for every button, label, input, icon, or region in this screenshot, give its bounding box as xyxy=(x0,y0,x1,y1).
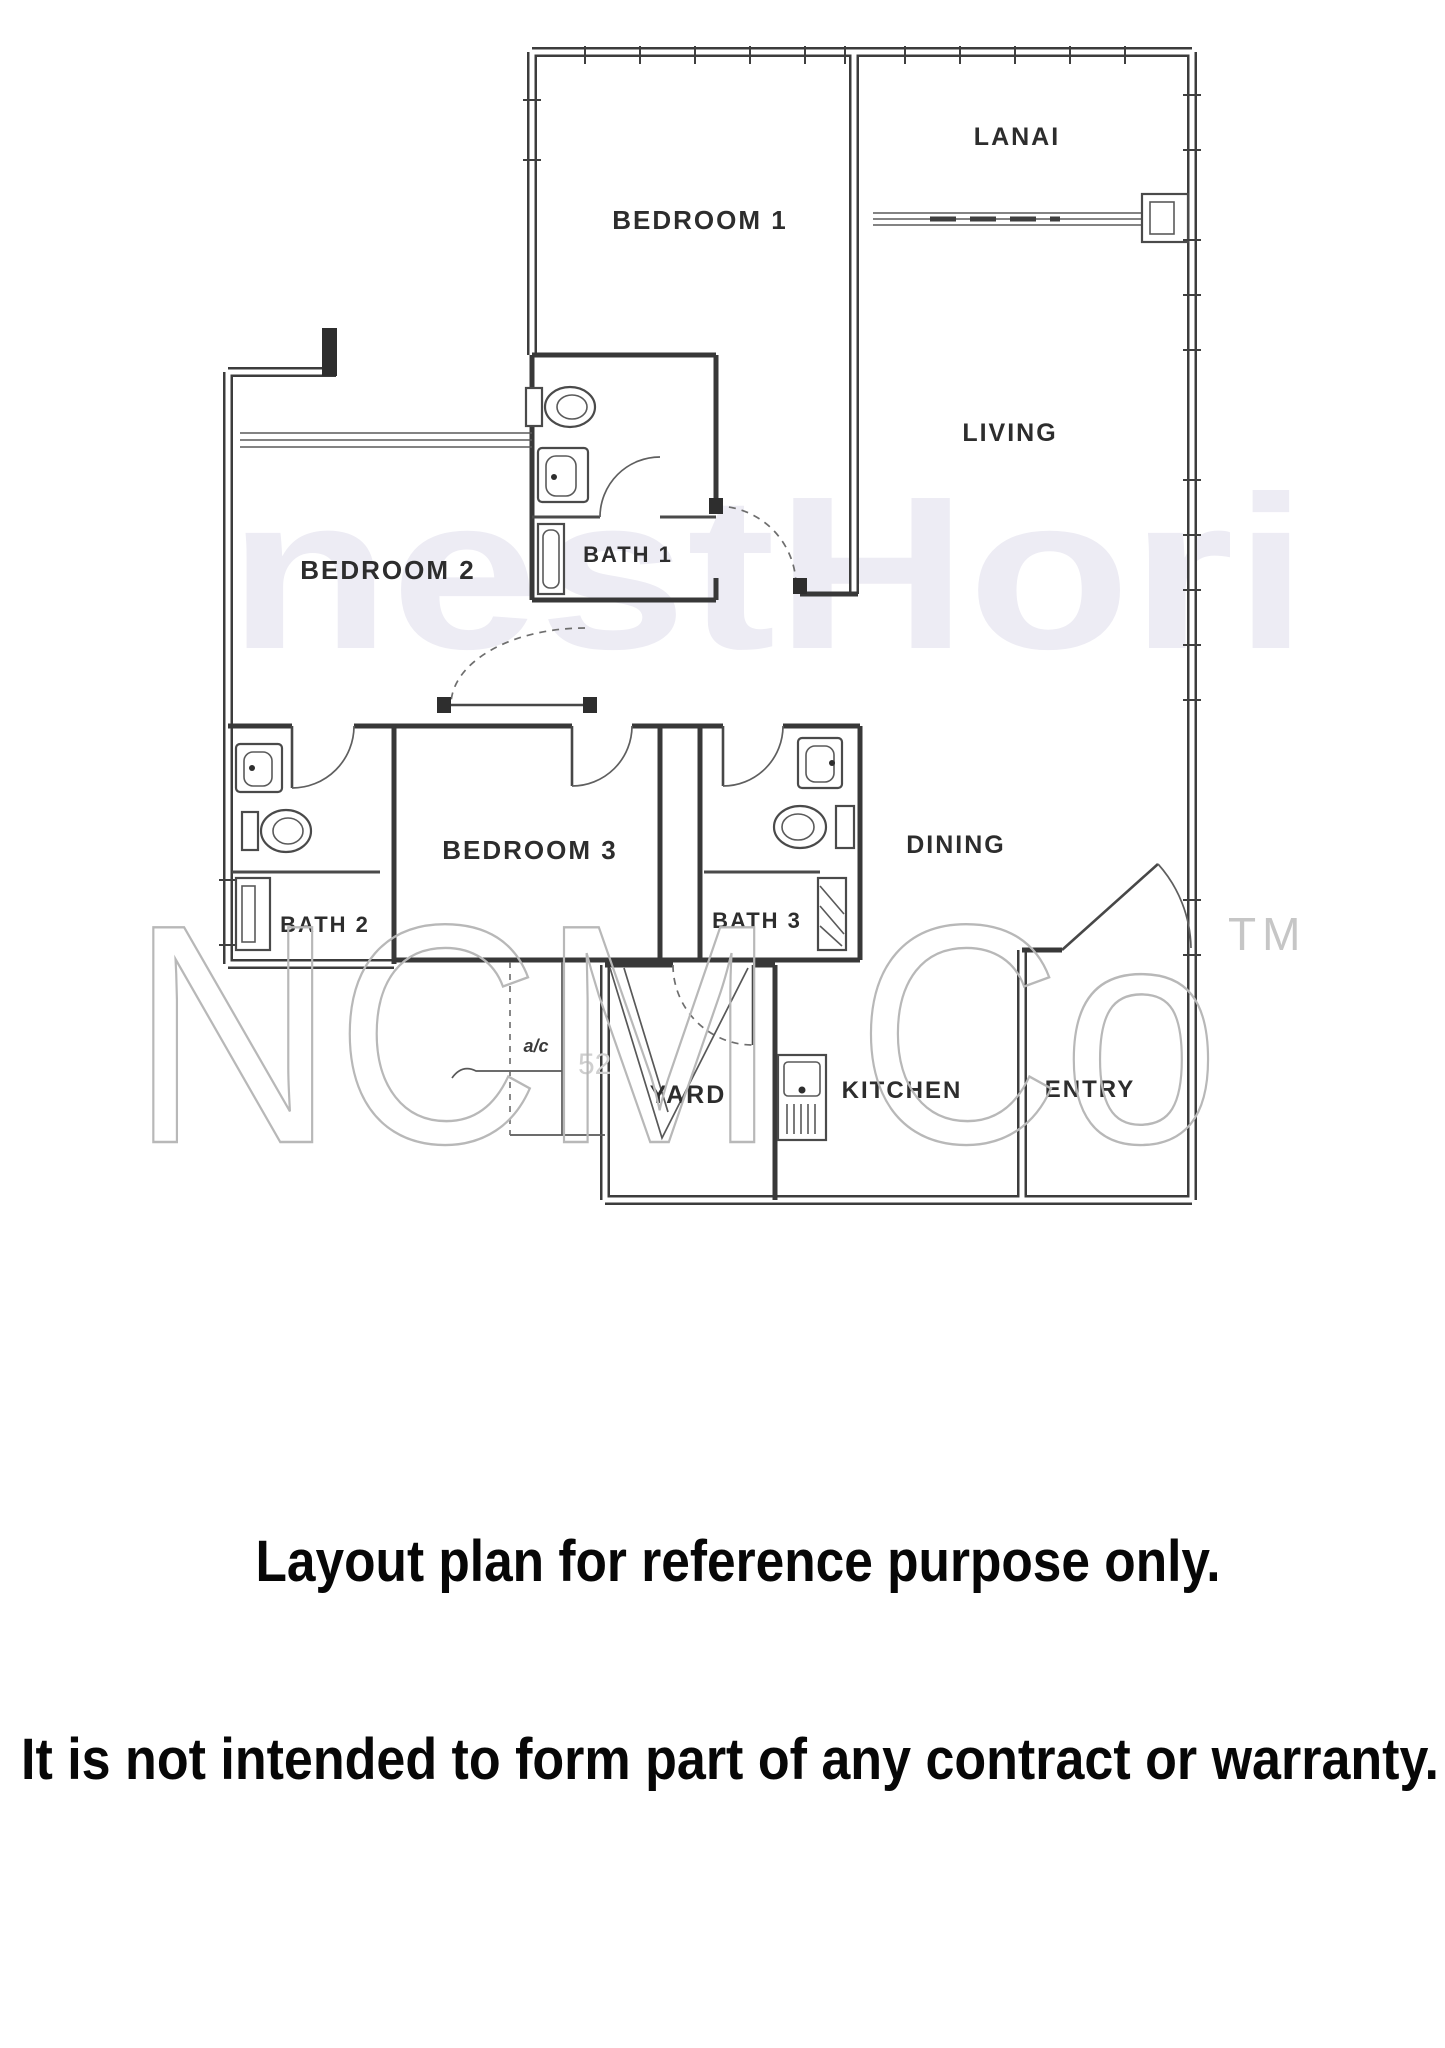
door-jamb xyxy=(583,697,597,713)
wall-post xyxy=(322,328,337,376)
door-jamb xyxy=(793,578,807,594)
room-label-bath-1: BATH 1 xyxy=(583,542,673,567)
lanai-corner-unit xyxy=(1142,194,1188,242)
bathtub-icon xyxy=(538,524,564,594)
toilet-icon xyxy=(526,387,595,427)
caption-line-1: Layout plan for reference purpose only. xyxy=(256,1529,1221,1594)
room-label-bedroom-2: BEDROOM 2 xyxy=(300,555,475,585)
door-jamb xyxy=(437,697,451,713)
bath3-door-arc xyxy=(723,726,783,786)
room-label-bedroom-1: BEDROOM 1 xyxy=(612,205,787,235)
captions: Layout plan for reference purpose only. … xyxy=(21,1529,1439,1792)
toilet-icon xyxy=(774,806,854,848)
trademark-symbol: TM xyxy=(1228,908,1306,960)
floor-plan-image: nestHori xyxy=(0,0,1445,2048)
sink-icon xyxy=(798,738,842,788)
room-label-living: LIVING xyxy=(962,419,1057,447)
bath2-door-arc xyxy=(292,726,354,788)
sink-icon xyxy=(538,448,588,502)
sink-icon xyxy=(236,744,282,792)
bedroom3-door-arc xyxy=(572,726,632,786)
bedroom2-window xyxy=(240,433,532,447)
brand-watermark: NCM Co TM xyxy=(130,861,1306,1209)
door-jamb xyxy=(709,498,723,514)
caption-line-2: It is not intended to form part of any c… xyxy=(21,1727,1439,1792)
lanai-living-window xyxy=(873,213,1142,225)
scanned-floor-plan-page: nestHori xyxy=(0,0,1445,2048)
room-label-lanai: LANAI xyxy=(974,123,1060,151)
room-label-dining: DINING xyxy=(906,831,1006,859)
toilet-icon xyxy=(242,810,311,852)
brand-watermark-text: NCM Co xyxy=(130,861,1220,1209)
